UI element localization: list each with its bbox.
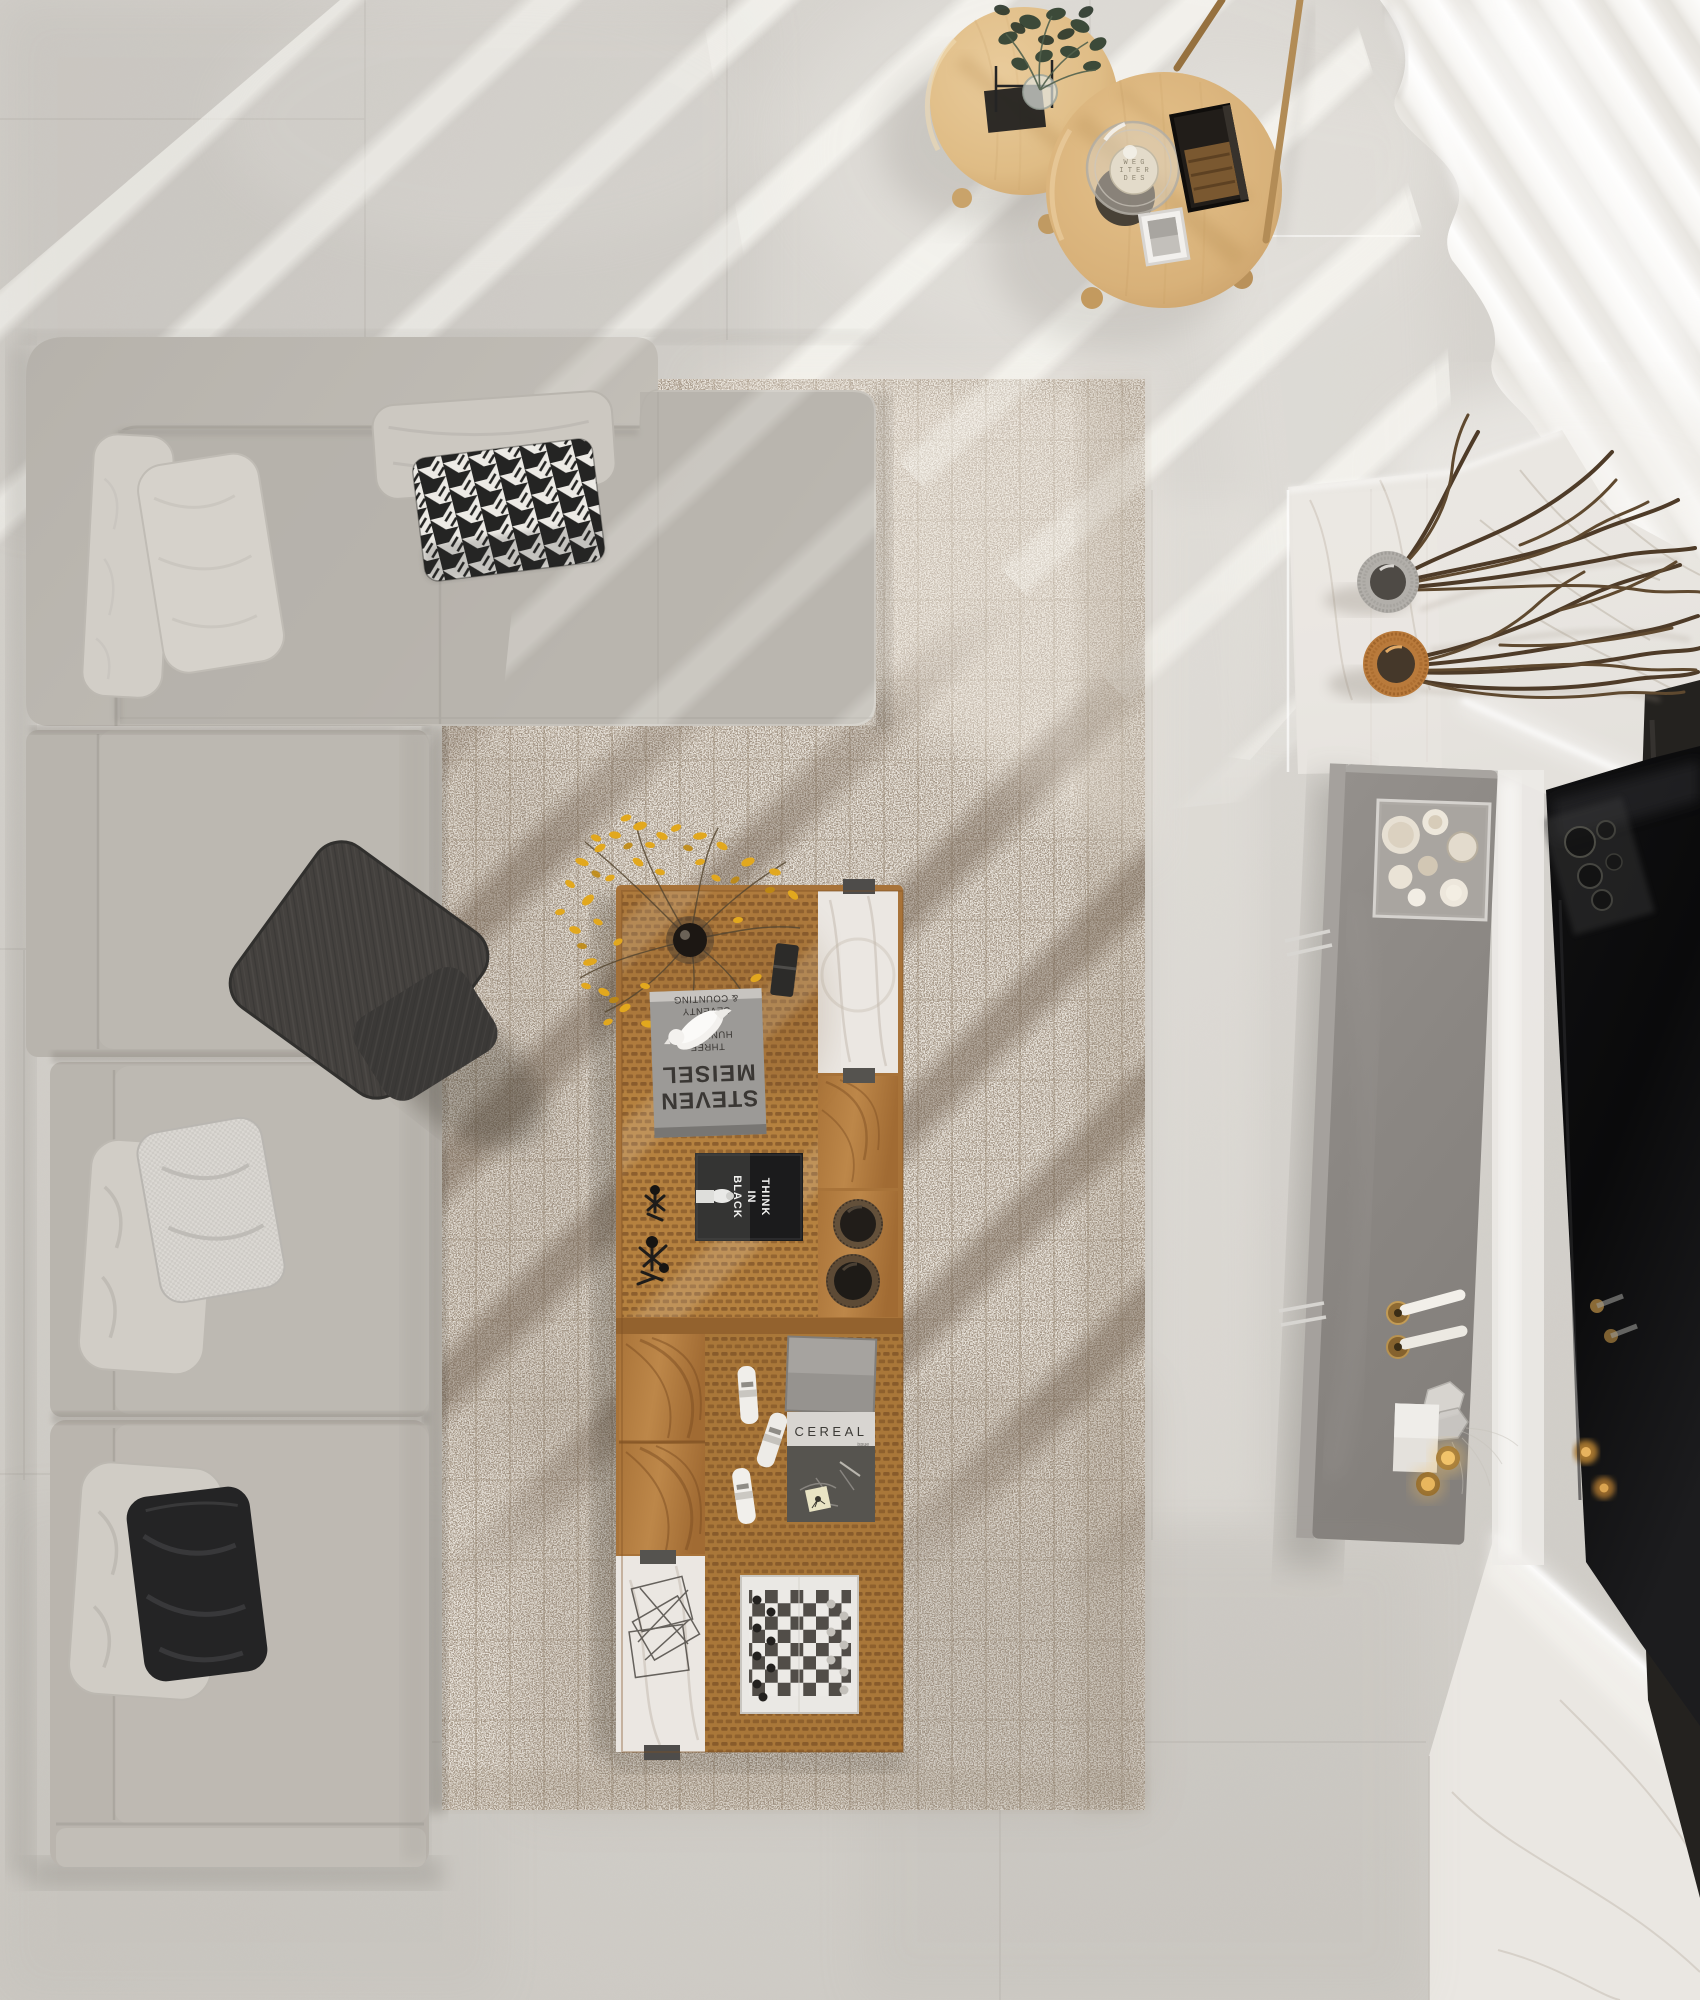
svg-text:CEREAL: CEREAL [794, 1424, 867, 1439]
svg-text:STEVEN: STEVEN [660, 1085, 759, 1114]
svg-text:issue: issue [857, 1442, 869, 1448]
svg-text:MEISEL: MEISEL [661, 1059, 756, 1088]
svg-text:IN: IN [745, 1191, 757, 1204]
svg-text:& COUNTING: & COUNTING [673, 992, 738, 1005]
svg-text:D E S: D E S [1123, 175, 1144, 183]
svg-text:THINK: THINK [759, 1178, 771, 1217]
svg-text:W E G: W E G [1123, 159, 1144, 167]
svg-text:I T E R: I T E R [1119, 167, 1149, 175]
